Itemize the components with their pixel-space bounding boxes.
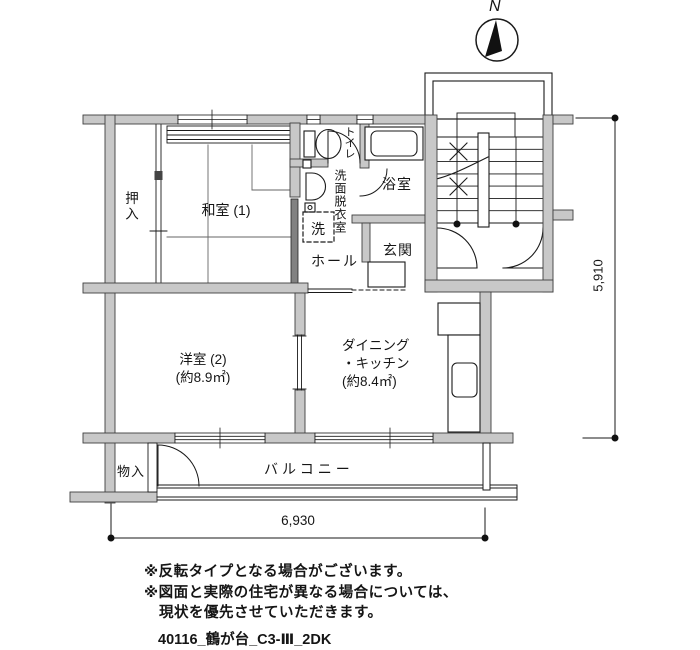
room-label-balcony: バルコニー — [264, 459, 354, 479]
fusuma-door-band — [291, 199, 298, 285]
room-label-oshiire: 押入 — [120, 191, 140, 222]
walls — [70, 115, 573, 503]
north-arrow-icon — [476, 19, 518, 61]
dk-area: (約8.4㎡) — [342, 373, 410, 391]
room-label-toilet: トイレ — [341, 126, 357, 159]
room-label-senmen: 洗面脱衣室 — [332, 169, 349, 234]
oshiire-partition — [150, 123, 167, 283]
room-label-genkan: 玄関 — [383, 240, 413, 260]
dimension-label-vertical: 5,910 — [591, 253, 606, 299]
room-label-bathroom: 浴室 — [382, 174, 412, 194]
staircase — [436, 113, 543, 268]
washitsu-north-band — [167, 126, 295, 143]
washbasin-icon — [305, 173, 326, 212]
kitchen-sink-icon — [452, 363, 477, 397]
plan-id: 40116_鶴が台_C3-Ⅲ_2DK — [158, 628, 331, 649]
balcony-partition — [483, 443, 490, 490]
north-label: N — [489, 0, 501, 16]
dk-name2: ・キッチン — [342, 355, 410, 373]
dk-name1: ダイニング — [342, 337, 410, 355]
room-label-washitsu: 和室 (1) — [183, 200, 269, 220]
room-label-laundry: 洗 — [311, 219, 325, 239]
balcony-railing — [157, 485, 517, 500]
note-line-1: ※反転タイプとなる場合がございます。 — [144, 560, 412, 581]
dimension-label-horizontal: 6,930 — [270, 513, 326, 528]
stairwell-shell — [425, 73, 552, 119]
note-line-3: 現状を優先させていただきます。 — [159, 601, 383, 622]
monoire-door — [148, 443, 157, 492]
yoshitsu-name: 洋室 (2) — [156, 351, 250, 369]
genkan-step — [368, 262, 405, 287]
stair-cut-marks — [450, 143, 467, 195]
yoshitsu-area: (約8.9㎡) — [156, 369, 250, 387]
bathtub-icon — [365, 127, 423, 160]
note-line-2: ※図面と実際の住宅が異なる場合については、 — [144, 581, 458, 602]
balcony-door-arc — [158, 445, 199, 486]
floor-plan-drawing — [0, 0, 700, 650]
room-label-monoire: 物入 — [117, 461, 145, 480]
room-label-yoshitsu: 洋室 (2) (約8.9㎡) — [156, 351, 250, 386]
room-label-hall: ホール — [311, 251, 359, 271]
kitchen-counter — [438, 303, 480, 432]
entrance-door-arcs — [437, 228, 543, 268]
room-label-dk: ダイニング ・キッチン (約8.4㎡) — [342, 337, 410, 390]
floor-plan-page: N 押入 和室 (1) トイレ 洗面脱衣室 洗 浴室 ホール 玄関 洋室 (2)… — [0, 0, 700, 650]
